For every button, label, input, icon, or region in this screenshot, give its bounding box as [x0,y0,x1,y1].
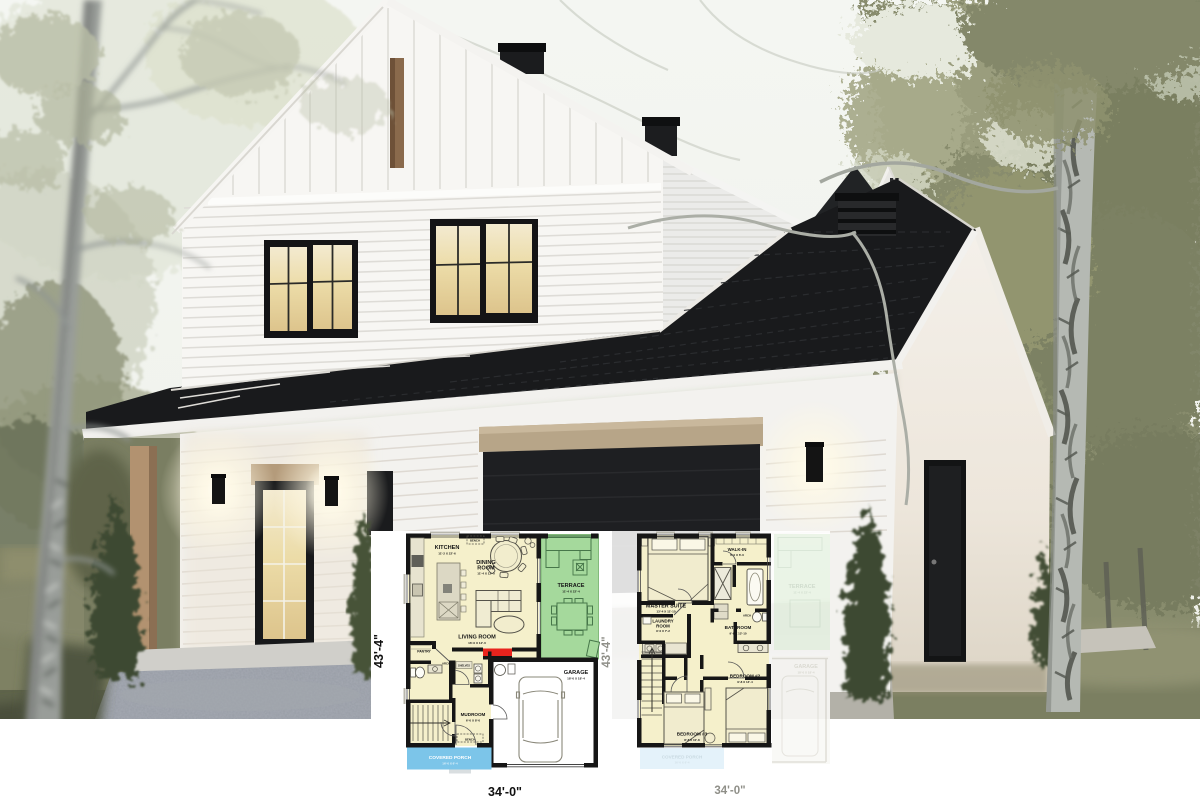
svg-text:TERRACE: TERRACE [557,583,584,589]
svg-text:9'-0 X 7'-2: 9'-0 X 7'-2 [656,629,670,633]
svg-text:6'-0 X 8'-0: 6'-0 X 8'-0 [466,719,480,723]
svg-text:9'-8 X 14'-4: 9'-8 X 14'-4 [737,680,753,684]
svg-text:11'-4 X 22'-4: 11'-4 X 22'-4 [793,591,811,595]
svg-text:MUDROOM: MUDROOM [461,712,486,717]
svg-text:34'-0": 34'-0" [488,785,522,799]
svg-text:18'-0 X 18'-4: 18'-0 X 18'-4 [797,671,814,675]
svg-text:GARAGE: GARAGE [564,670,589,676]
svg-text:6'-0 X 6'-0: 6'-0 X 6'-0 [730,553,744,557]
svg-text:ARCH: ARCH [442,662,450,666]
svg-text:43'-4": 43'-4" [372,634,386,668]
svg-text:KITCHEN: KITCHEN [435,545,460,551]
svg-text:9'-8 X 12'-10: 9'-8 X 12'-10 [729,632,746,636]
svg-text:TERRACE: TERRACE [788,584,815,590]
svg-text:16'-0 X 6'-4: 16'-0 X 6'-4 [675,761,690,765]
svg-text:SHELVES: SHELVES [458,664,470,668]
svg-text:11'-2 X 22'-6: 11'-2 X 22'-6 [438,552,456,556]
svg-text:43'-4": 43'-4" [601,636,613,667]
svg-text:18'-0 X 18'-4: 18'-0 X 18'-4 [567,677,585,681]
svg-text:BEDROOM #3: BEDROOM #3 [677,732,708,737]
svg-text:WALK-IN: WALK-IN [728,547,747,552]
svg-text:11'-4 X 22'-4: 11'-4 X 22'-4 [562,590,580,594]
svg-text:8'-8 X 10'-8: 8'-8 X 10'-8 [684,738,700,742]
svg-text:BENCH: BENCH [470,539,480,543]
svg-text:ROOM: ROOM [656,624,670,629]
svg-text:GARAGE: GARAGE [794,664,818,670]
svg-text:BEDROOM #2: BEDROOM #2 [730,674,761,679]
svg-text:16'-0 X 12'-0: 16'-0 X 12'-0 [468,641,486,645]
svg-text:LIVING ROOM: LIVING ROOM [458,635,496,641]
svg-text:ARCH: ARCH [743,614,751,618]
svg-text:16'-0 X 6'-4: 16'-0 X 6'-4 [442,762,458,766]
svg-text:BENCH: BENCH [465,738,475,742]
svg-text:COVERED PORCH: COVERED PORCH [429,755,472,761]
svg-text:BATHROOM: BATHROOM [725,625,752,630]
svg-text:34'-0": 34'-0" [714,785,745,797]
svg-text:COVERED PORCH: COVERED PORCH [662,755,703,760]
svg-text:PANTRY: PANTRY [417,650,431,654]
svg-text:11'-4 X 12'-0: 11'-4 X 12'-0 [477,572,495,576]
svg-text:13'-4 X 11'-10: 13'-4 X 11'-10 [656,610,675,614]
